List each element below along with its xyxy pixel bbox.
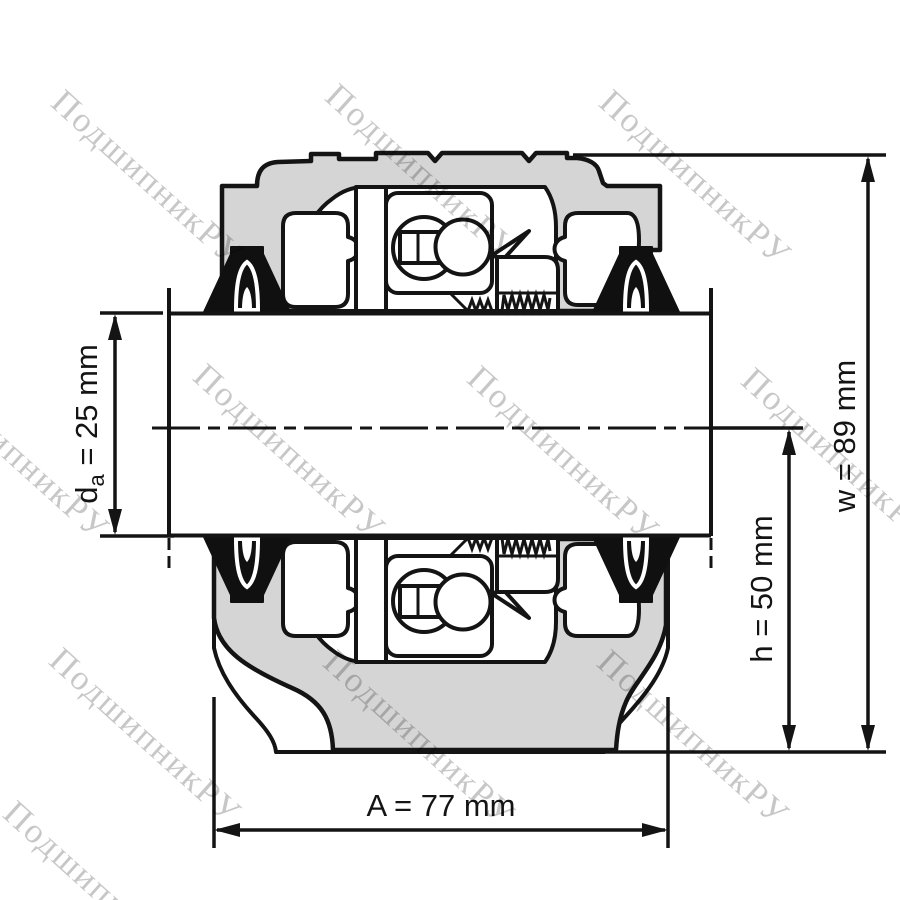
arrowhead-down bbox=[108, 509, 122, 535]
arrowhead-up bbox=[861, 156, 875, 182]
arrowhead-down bbox=[782, 725, 796, 751]
dimension-h: h = 50 mm bbox=[744, 429, 796, 751]
lower-housing bbox=[204, 537, 679, 752]
da-label: da = 25 mm bbox=[69, 344, 109, 504]
arrowhead-down bbox=[861, 725, 875, 751]
bearing-cross-section-drawing: da = 25 mm w = 89 mm h = 50 mm A = 77 mm bbox=[0, 0, 900, 900]
arrowhead-up bbox=[782, 429, 796, 455]
shaft bbox=[152, 288, 803, 572]
arrowhead-right bbox=[642, 823, 668, 837]
shaft-body bbox=[171, 316, 709, 533]
dimension-da: da = 25 mm bbox=[69, 313, 174, 536]
arrowhead-up bbox=[108, 314, 122, 340]
technical-drawing-page: da = 25 mm w = 89 mm h = 50 mm A = 77 mm bbox=[0, 0, 900, 900]
arrowhead-left bbox=[214, 823, 240, 837]
h-label: h = 50 mm bbox=[744, 515, 779, 662]
A-label: A = 77 mm bbox=[366, 788, 515, 823]
w-label: w = 89 mm bbox=[827, 360, 862, 513]
upper-housing bbox=[204, 153, 679, 312]
